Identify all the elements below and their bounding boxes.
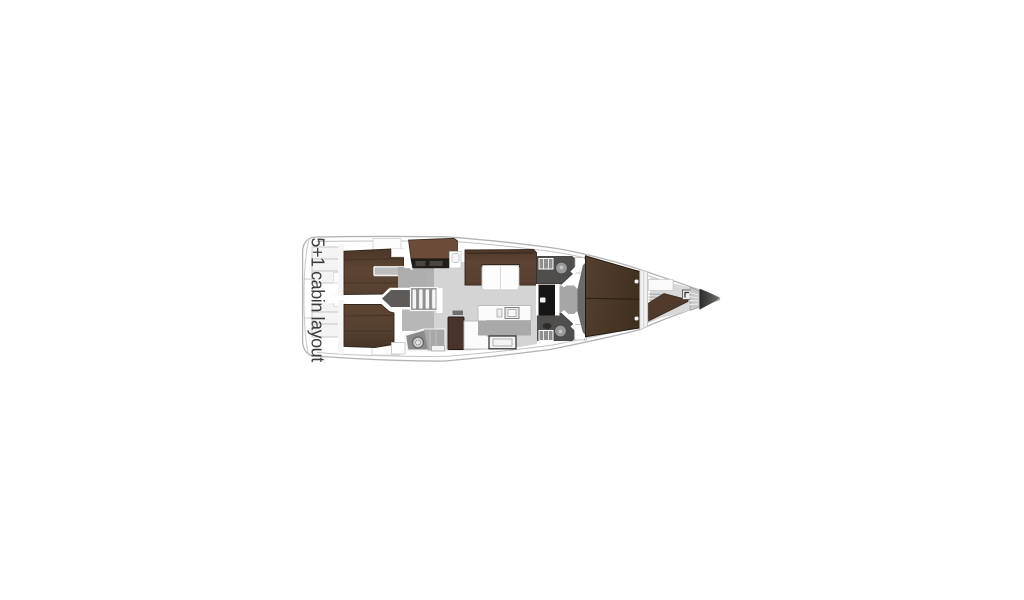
svg-text:5+1 cabin layout: 5+1 cabin layout bbox=[308, 237, 328, 362]
